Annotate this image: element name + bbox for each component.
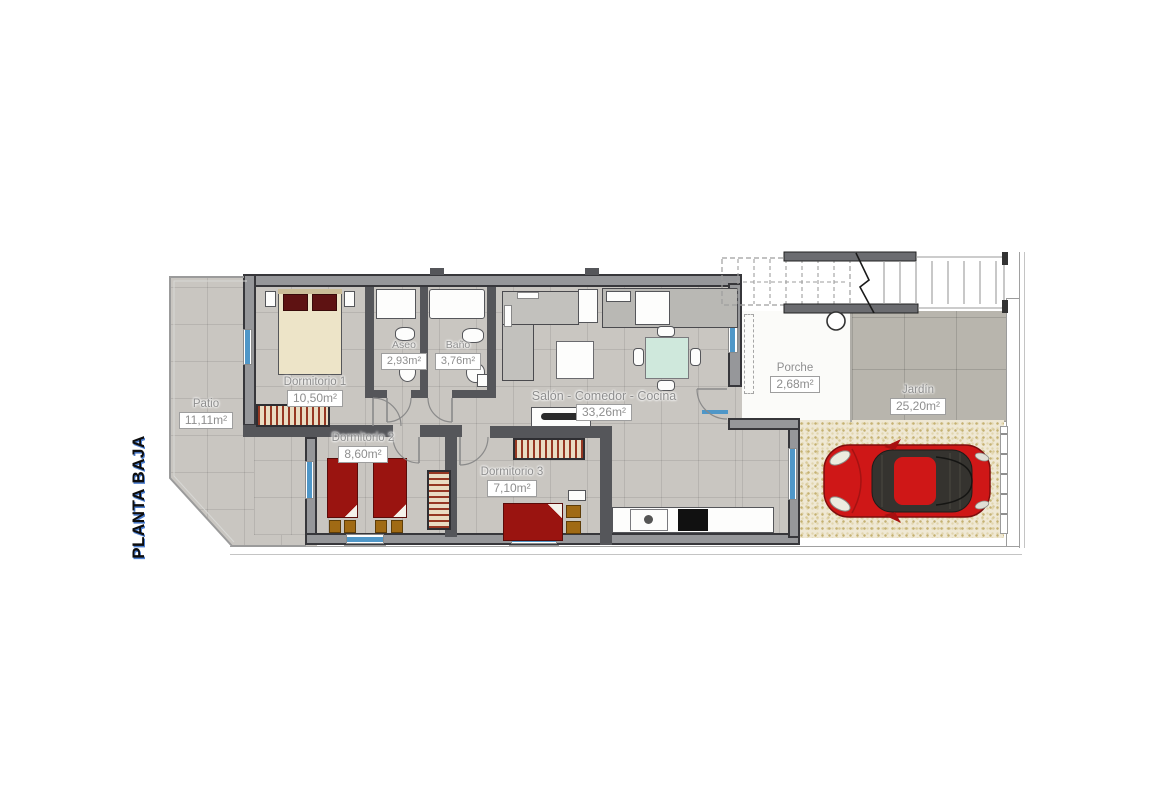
wall-d3-east — [600, 426, 612, 545]
wall-aseo-south-b — [411, 390, 428, 398]
room-name: Porche — [777, 362, 813, 375]
bed2-pillow-b — [391, 520, 403, 533]
side-cabinet — [578, 289, 598, 323]
nightstand-left — [265, 291, 276, 307]
car-red — [822, 437, 994, 525]
room-name: Baño — [446, 339, 471, 352]
pilaster-1 — [430, 268, 444, 275]
wardrobe-dorm3 — [513, 438, 585, 460]
room-label-patio: Patio 11,11m² — [156, 398, 256, 429]
bed2-pillow-a — [375, 520, 387, 533]
room-label-dormitorio1: Dormitorio 1 10,50m² — [255, 376, 375, 407]
bed3-pillow-b — [566, 521, 581, 534]
dining-chair-w — [633, 348, 644, 366]
kitchen-cabinet-strip — [606, 291, 631, 302]
room-name: Patio — [193, 398, 219, 411]
room-area: 33,26m² — [576, 404, 632, 421]
wall-north — [243, 274, 742, 287]
dining-table — [645, 337, 689, 379]
kitchen-sink-tap — [644, 515, 653, 524]
shower-aseo — [376, 289, 416, 319]
bed-single-2 — [373, 458, 407, 518]
boundary-east — [1019, 252, 1025, 548]
bed1-pillow-b — [344, 520, 356, 533]
wardrobe-dorm1 — [256, 404, 330, 427]
staircase — [722, 252, 1008, 313]
room-area: 11,11m² — [179, 412, 233, 429]
room-label-dormitorio3: Dormitorio 3 7,10m² — [452, 466, 572, 497]
pillow-right — [312, 294, 337, 311]
room-name: Jardín — [902, 384, 934, 397]
window-salon-se — [788, 448, 797, 500]
room-name: Salón - Comedor - Cocina — [532, 390, 677, 403]
dining-chair-n — [657, 326, 675, 337]
room-name: Dormitorio 1 — [284, 376, 347, 389]
room-area: 2,68m² — [770, 376, 819, 393]
floor-plan: Patio 11,11m² Dormitorio 1 10,50m² Aseo … — [0, 0, 1170, 785]
room-label-jardin: Jardín 25,20m² — [868, 384, 968, 415]
room-name: Aseo — [392, 339, 416, 352]
driveway-gate — [1000, 426, 1008, 534]
bed3-pillow-a — [566, 505, 581, 518]
room-name: Dormitorio 2 — [332, 432, 395, 445]
sofa-cushion — [517, 292, 539, 299]
window-dorm2-south — [346, 534, 384, 544]
boundary-south — [230, 546, 1022, 555]
wardrobe-dorm2 — [427, 470, 451, 530]
kitchen-cooktop — [678, 509, 708, 531]
room-label-bano: Baño 3,76m² — [423, 339, 493, 370]
room-area: 8,60m² — [338, 446, 387, 463]
window-dorm1-west — [243, 329, 252, 365]
sofa-armrest — [504, 305, 512, 327]
porch-garden-divider — [850, 312, 852, 422]
room-label-dormitorio2: Dormitorio 2 8,60m² — [303, 432, 423, 463]
sofa-main — [502, 291, 579, 325]
pillow-left — [283, 294, 308, 311]
room-label-salon: Salón - Comedor - Cocina 33,26m² — [504, 390, 704, 421]
window-dorm2-west — [305, 461, 314, 499]
bed1-pillow-a — [329, 520, 341, 533]
room-area: 10,50m² — [287, 390, 343, 407]
coffee-table — [556, 341, 594, 379]
page-title: PLANTA BAJA — [127, 432, 151, 562]
entry-threshold — [702, 410, 728, 414]
wall-bano-south — [452, 390, 496, 398]
room-name: Dormitorio 3 — [481, 466, 544, 479]
kitchen-island-block — [635, 291, 670, 325]
bed-single-1 — [327, 458, 358, 518]
room-area: 2,93m² — [381, 353, 427, 370]
room-label-porche: Porche 2,68m² — [745, 362, 845, 393]
wall-d3-north — [490, 426, 612, 438]
bathtub — [429, 289, 485, 319]
nightstand-right — [344, 291, 355, 307]
room-area: 25,20m² — [890, 398, 946, 415]
bed-dorm3 — [503, 503, 563, 541]
pilaster-2 — [585, 268, 599, 275]
room-area: 7,10m² — [487, 480, 536, 497]
dining-chair-e — [690, 348, 701, 366]
bidet-bano — [477, 374, 488, 387]
room-area: 3,76m² — [435, 353, 481, 370]
